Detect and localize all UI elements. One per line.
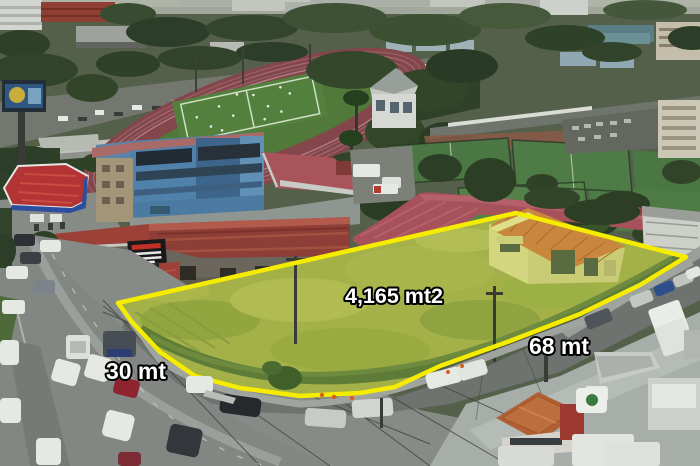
svg-text:68 mt: 68 mt (529, 333, 589, 359)
svg-text:30 mt: 30 mt (106, 358, 166, 384)
svg-text:4,165 mt2: 4,165 mt2 (345, 284, 443, 308)
